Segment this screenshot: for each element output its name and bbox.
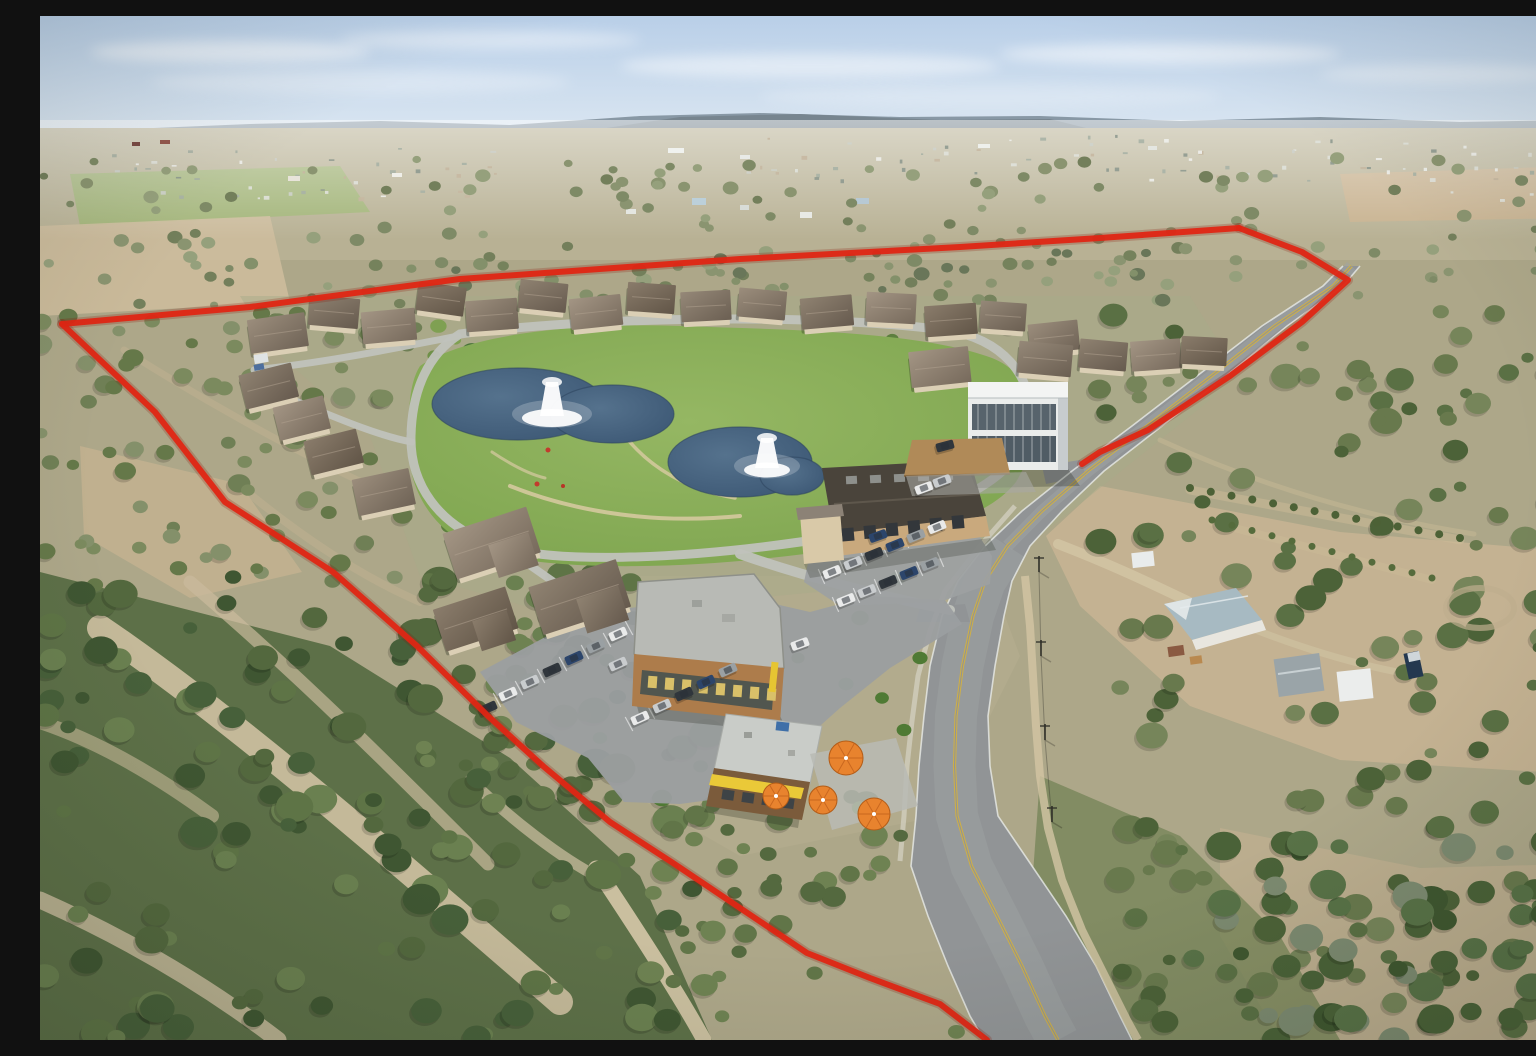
grade-layer — [40, 16, 1536, 1040]
aerial-scene-canvas — [40, 16, 1536, 1040]
vignette — [40, 16, 1536, 1040]
aerial-property-photo: Aerial drone photograph of a hill-countr… — [40, 16, 1536, 1040]
